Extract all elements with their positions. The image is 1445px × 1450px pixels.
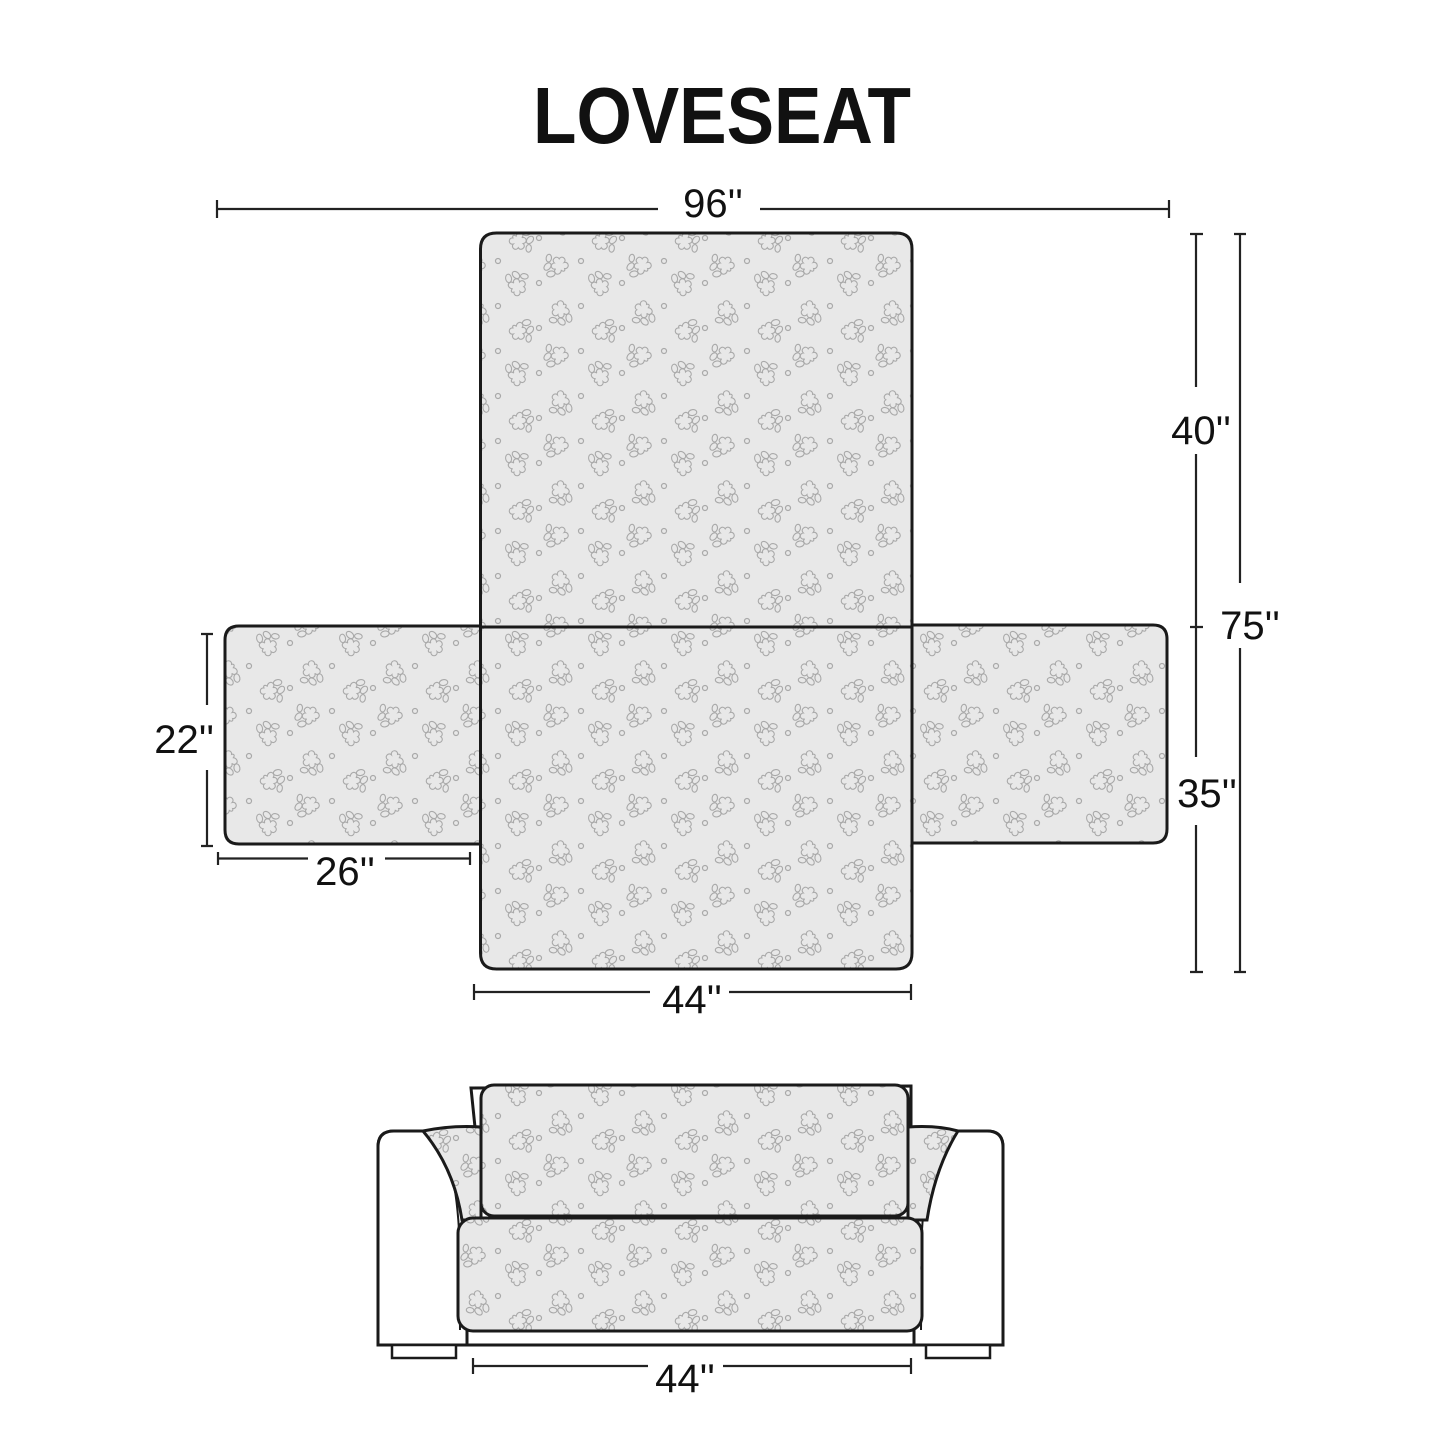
- svg-text:22'': 22'': [154, 718, 214, 762]
- svg-text:LOVESEAT: LOVESEAT: [533, 71, 911, 160]
- svg-text:44'': 44'': [655, 1357, 715, 1401]
- svg-text:75'': 75'': [1220, 604, 1280, 648]
- svg-text:40'': 40'': [1171, 409, 1231, 453]
- svg-text:26'': 26'': [315, 850, 375, 894]
- svg-text:96'': 96'': [683, 182, 743, 226]
- svg-text:44'': 44'': [662, 978, 722, 1022]
- svg-text:35'': 35'': [1177, 772, 1237, 816]
